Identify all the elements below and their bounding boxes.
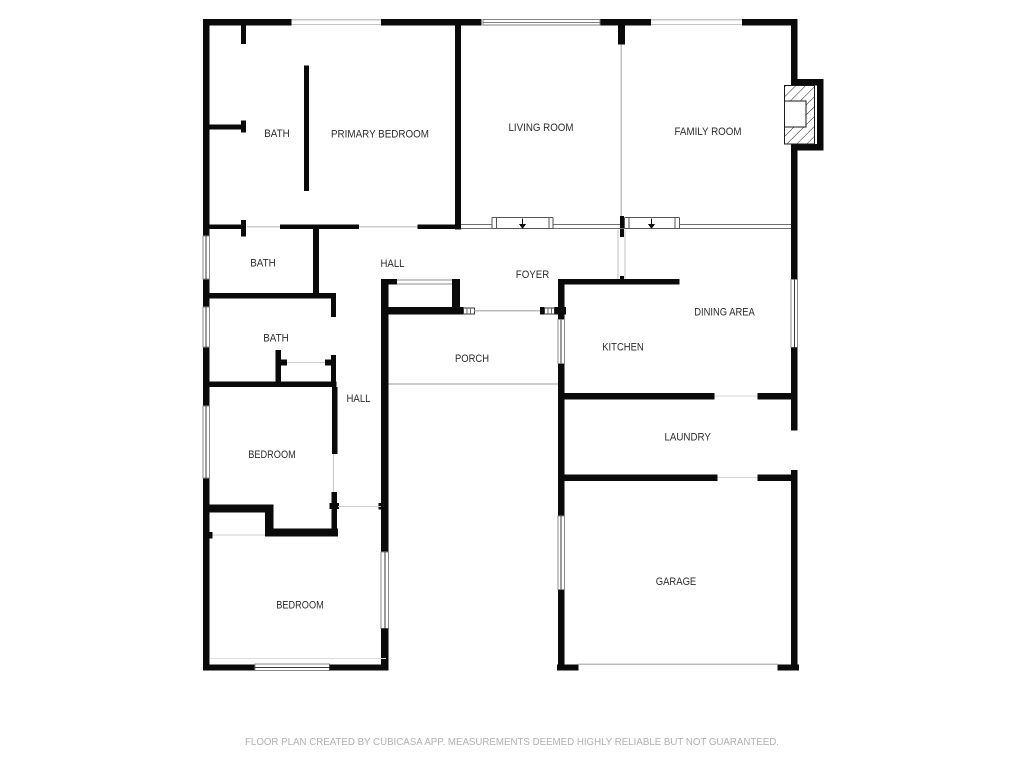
svg-text:FOYER: FOYER xyxy=(516,269,550,281)
svg-text:HALL: HALL xyxy=(381,258,405,270)
svg-text:PRIMARY BEDROOM: PRIMARY BEDROOM xyxy=(331,129,429,141)
svg-text:BATH: BATH xyxy=(264,128,290,140)
svg-text:BATH: BATH xyxy=(263,332,289,344)
svg-text:BEDROOM: BEDROOM xyxy=(248,449,296,461)
svg-text:BATH: BATH xyxy=(250,257,276,269)
svg-text:GARAGE: GARAGE xyxy=(656,576,697,588)
svg-text:HALL: HALL xyxy=(347,393,371,405)
svg-text:PORCH: PORCH xyxy=(455,353,489,365)
svg-text:FAMILY ROOM: FAMILY ROOM xyxy=(675,126,742,138)
svg-text:FLOOR PLAN CREATED BY CUBICASA: FLOOR PLAN CREATED BY CUBICASA APP. MEAS… xyxy=(245,737,779,748)
svg-text:LAUNDRY: LAUNDRY xyxy=(664,431,711,443)
svg-text:LIVING ROOM: LIVING ROOM xyxy=(509,122,574,134)
svg-text:BEDROOM: BEDROOM xyxy=(276,600,324,612)
svg-text:KITCHEN: KITCHEN xyxy=(602,342,644,354)
svg-text:DINING AREA: DINING AREA xyxy=(694,307,755,319)
